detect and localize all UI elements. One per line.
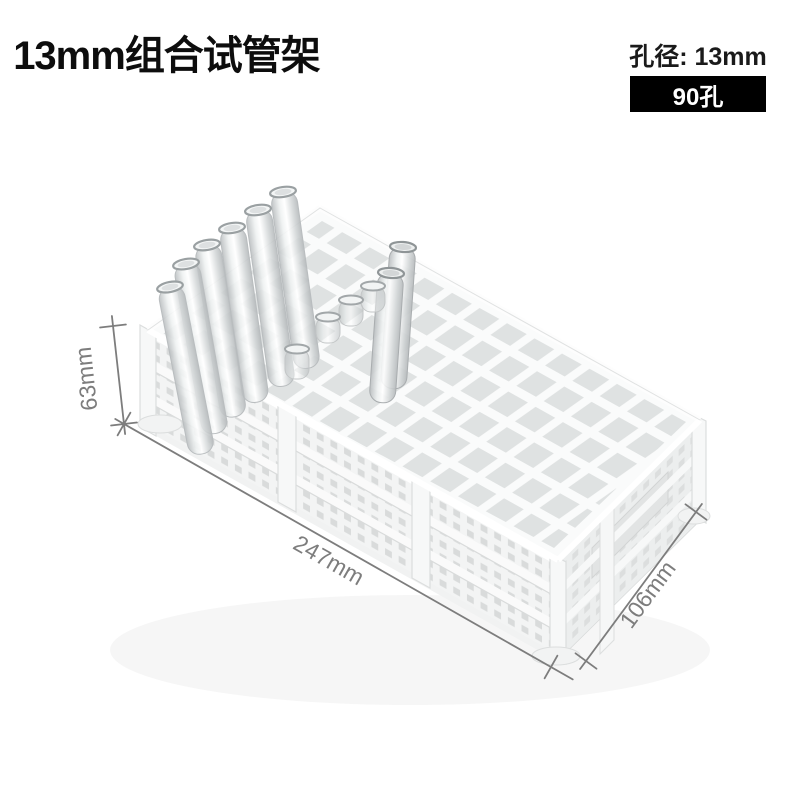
dimension-height [100, 316, 137, 434]
hole-diameter-box: 孔径: 13mm [628, 35, 768, 75]
product-title: 13mm组合试管架 [13, 10, 320, 93]
test-tube-rim [339, 296, 363, 327]
front-clip [278, 401, 296, 512]
product-title-text: 13mm组合试管架 [13, 23, 320, 81]
test-tube-rim [316, 313, 340, 344]
test-tube-rim [361, 282, 385, 313]
hole-count-badge: 90孔 [630, 76, 766, 112]
height-dimension-label: 63mm [70, 346, 103, 412]
front-clip [412, 477, 430, 588]
test-tube-rack-photo: 63mm 247mm 106mm [0, 0, 800, 800]
hole-diameter-text: 孔径: 13mm [629, 37, 767, 73]
product-image-stage: 63mm 247mm 106mm 13mm组合试管架 孔径: 13mm 90孔 [0, 0, 800, 800]
test-tube-rim [285, 345, 309, 380]
hole-count-text: 90孔 [673, 77, 724, 112]
